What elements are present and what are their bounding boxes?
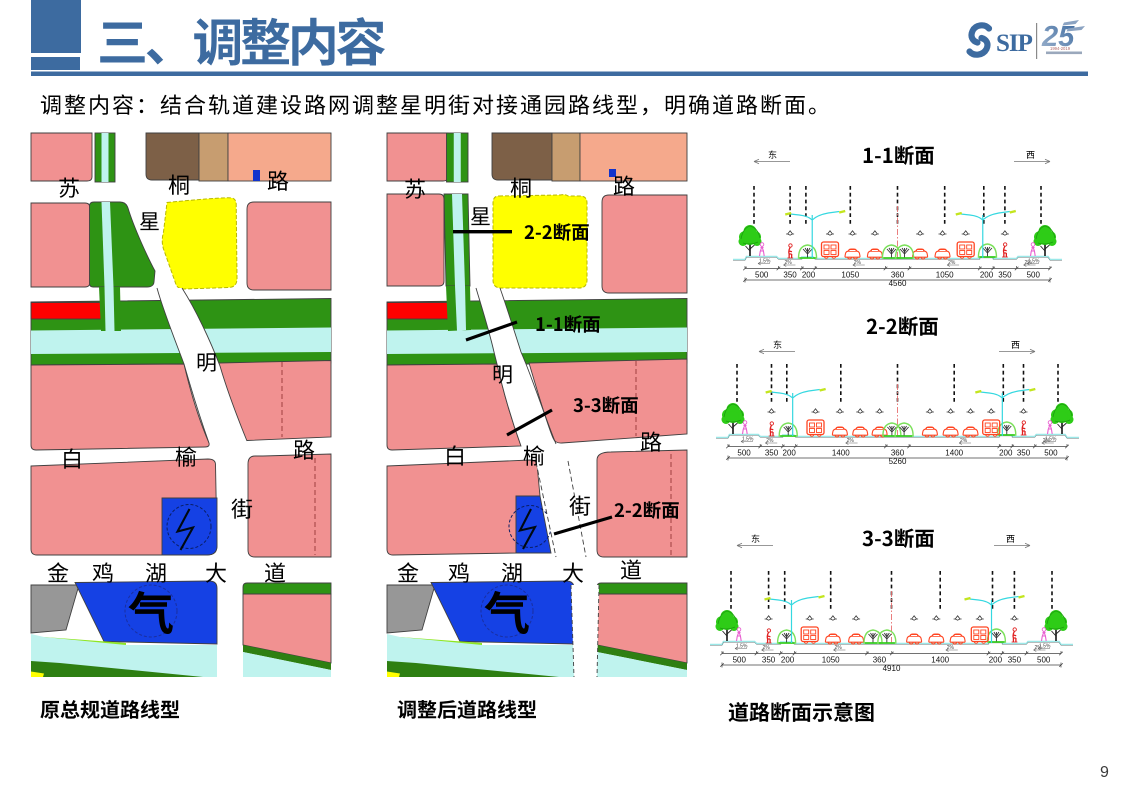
svg-text:350: 350 — [783, 271, 797, 280]
svg-text:500: 500 — [1037, 656, 1051, 665]
svg-text:350: 350 — [1017, 449, 1031, 458]
svg-text:200: 200 — [989, 656, 1003, 665]
svg-text:SIP: SIP — [996, 30, 1033, 57]
svg-text:1050: 1050 — [936, 271, 954, 280]
svg-text:200: 200 — [783, 449, 797, 458]
svg-text:500: 500 — [1027, 271, 1041, 280]
svg-text:200: 200 — [781, 656, 795, 665]
svg-text:4910: 4910 — [883, 664, 901, 673]
svg-text:200: 200 — [802, 271, 816, 280]
svg-text:200: 200 — [980, 271, 994, 280]
svg-text:350: 350 — [762, 656, 776, 665]
svg-text:500: 500 — [1044, 449, 1058, 458]
svg-text:500: 500 — [733, 656, 747, 665]
svg-text:1050: 1050 — [841, 271, 859, 280]
svg-text:1994-2019: 1994-2019 — [1050, 46, 1071, 51]
svg-text:1400: 1400 — [931, 656, 949, 665]
svg-text:500: 500 — [755, 271, 769, 280]
svg-text:350: 350 — [1008, 656, 1022, 665]
svg-text:200: 200 — [999, 449, 1013, 458]
svg-text:9: 9 — [1100, 764, 1109, 781]
svg-text:4560: 4560 — [889, 279, 907, 288]
svg-text:1400: 1400 — [945, 449, 963, 458]
svg-text:5260: 5260 — [889, 457, 907, 466]
svg-text:500: 500 — [737, 449, 751, 458]
svg-text:350: 350 — [998, 271, 1012, 280]
svg-text:1400: 1400 — [832, 449, 850, 458]
svg-text:350: 350 — [765, 449, 779, 458]
svg-text:1050: 1050 — [822, 656, 840, 665]
